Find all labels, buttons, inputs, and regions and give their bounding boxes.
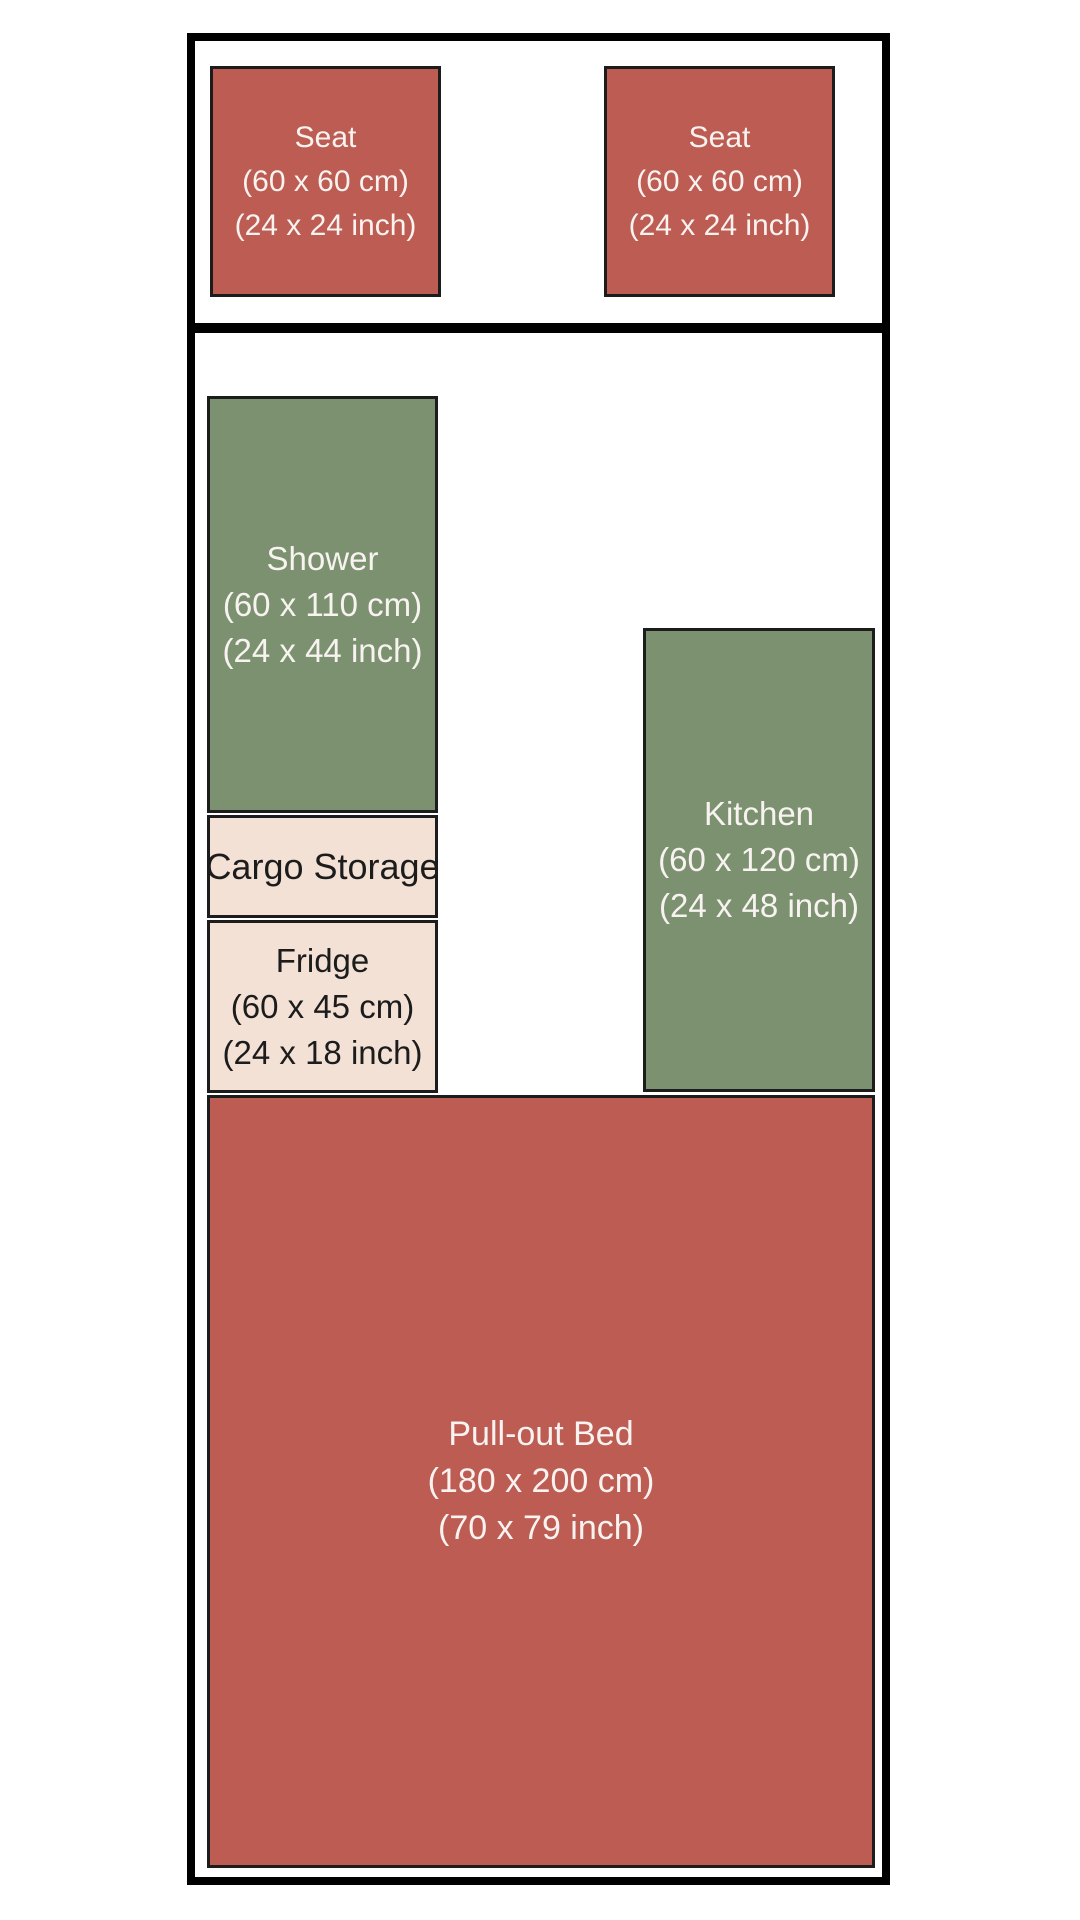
van-floorplan-canvas: Seat (60 x 60 cm) (24 x 24 inch) Seat (6… — [0, 0, 1080, 1920]
pullout-bed-dim-cm: (180 x 200 cm) — [428, 1458, 655, 1505]
shower-label: Shower — [267, 536, 379, 582]
fridge-dim-cm: (60 x 45 cm) — [231, 984, 414, 1030]
fridge-dim-inch: (24 x 18 inch) — [223, 1030, 423, 1076]
cab-divider-wall — [187, 323, 890, 333]
pullout-bed-box: Pull-out Bed (180 x 200 cm) (70 x 79 inc… — [207, 1095, 875, 1868]
pullout-bed-dim-inch: (70 x 79 inch) — [438, 1505, 644, 1552]
pullout-bed-label: Pull-out Bed — [448, 1411, 633, 1458]
seat-left-box: Seat (60 x 60 cm) (24 x 24 inch) — [210, 66, 441, 297]
seat-left-dim-cm: (60 x 60 cm) — [242, 160, 409, 204]
cargo-storage-box: Cargo Storage — [207, 815, 438, 918]
seat-right-dim-cm: (60 x 60 cm) — [636, 160, 803, 204]
fridge-box: Fridge (60 x 45 cm) (24 x 18 inch) — [207, 920, 438, 1093]
kitchen-label: Kitchen — [704, 791, 814, 837]
shower-dim-cm: (60 x 110 cm) — [223, 582, 422, 628]
seat-left-label: Seat — [295, 116, 357, 160]
seat-right-label: Seat — [689, 116, 751, 160]
kitchen-box: Kitchen (60 x 120 cm) (24 x 48 inch) — [643, 628, 875, 1092]
seat-right-box: Seat (60 x 60 cm) (24 x 24 inch) — [604, 66, 835, 297]
fridge-label: Fridge — [276, 938, 370, 984]
seat-right-dim-inch: (24 x 24 inch) — [629, 204, 811, 248]
shower-dim-inch: (24 x 44 inch) — [223, 628, 423, 674]
seat-left-dim-inch: (24 x 24 inch) — [235, 204, 417, 248]
cargo-storage-label: Cargo Storage — [205, 844, 439, 890]
shower-box: Shower (60 x 110 cm) (24 x 44 inch) — [207, 396, 438, 813]
kitchen-dim-inch: (24 x 48 inch) — [659, 883, 859, 929]
kitchen-dim-cm: (60 x 120 cm) — [658, 837, 860, 883]
